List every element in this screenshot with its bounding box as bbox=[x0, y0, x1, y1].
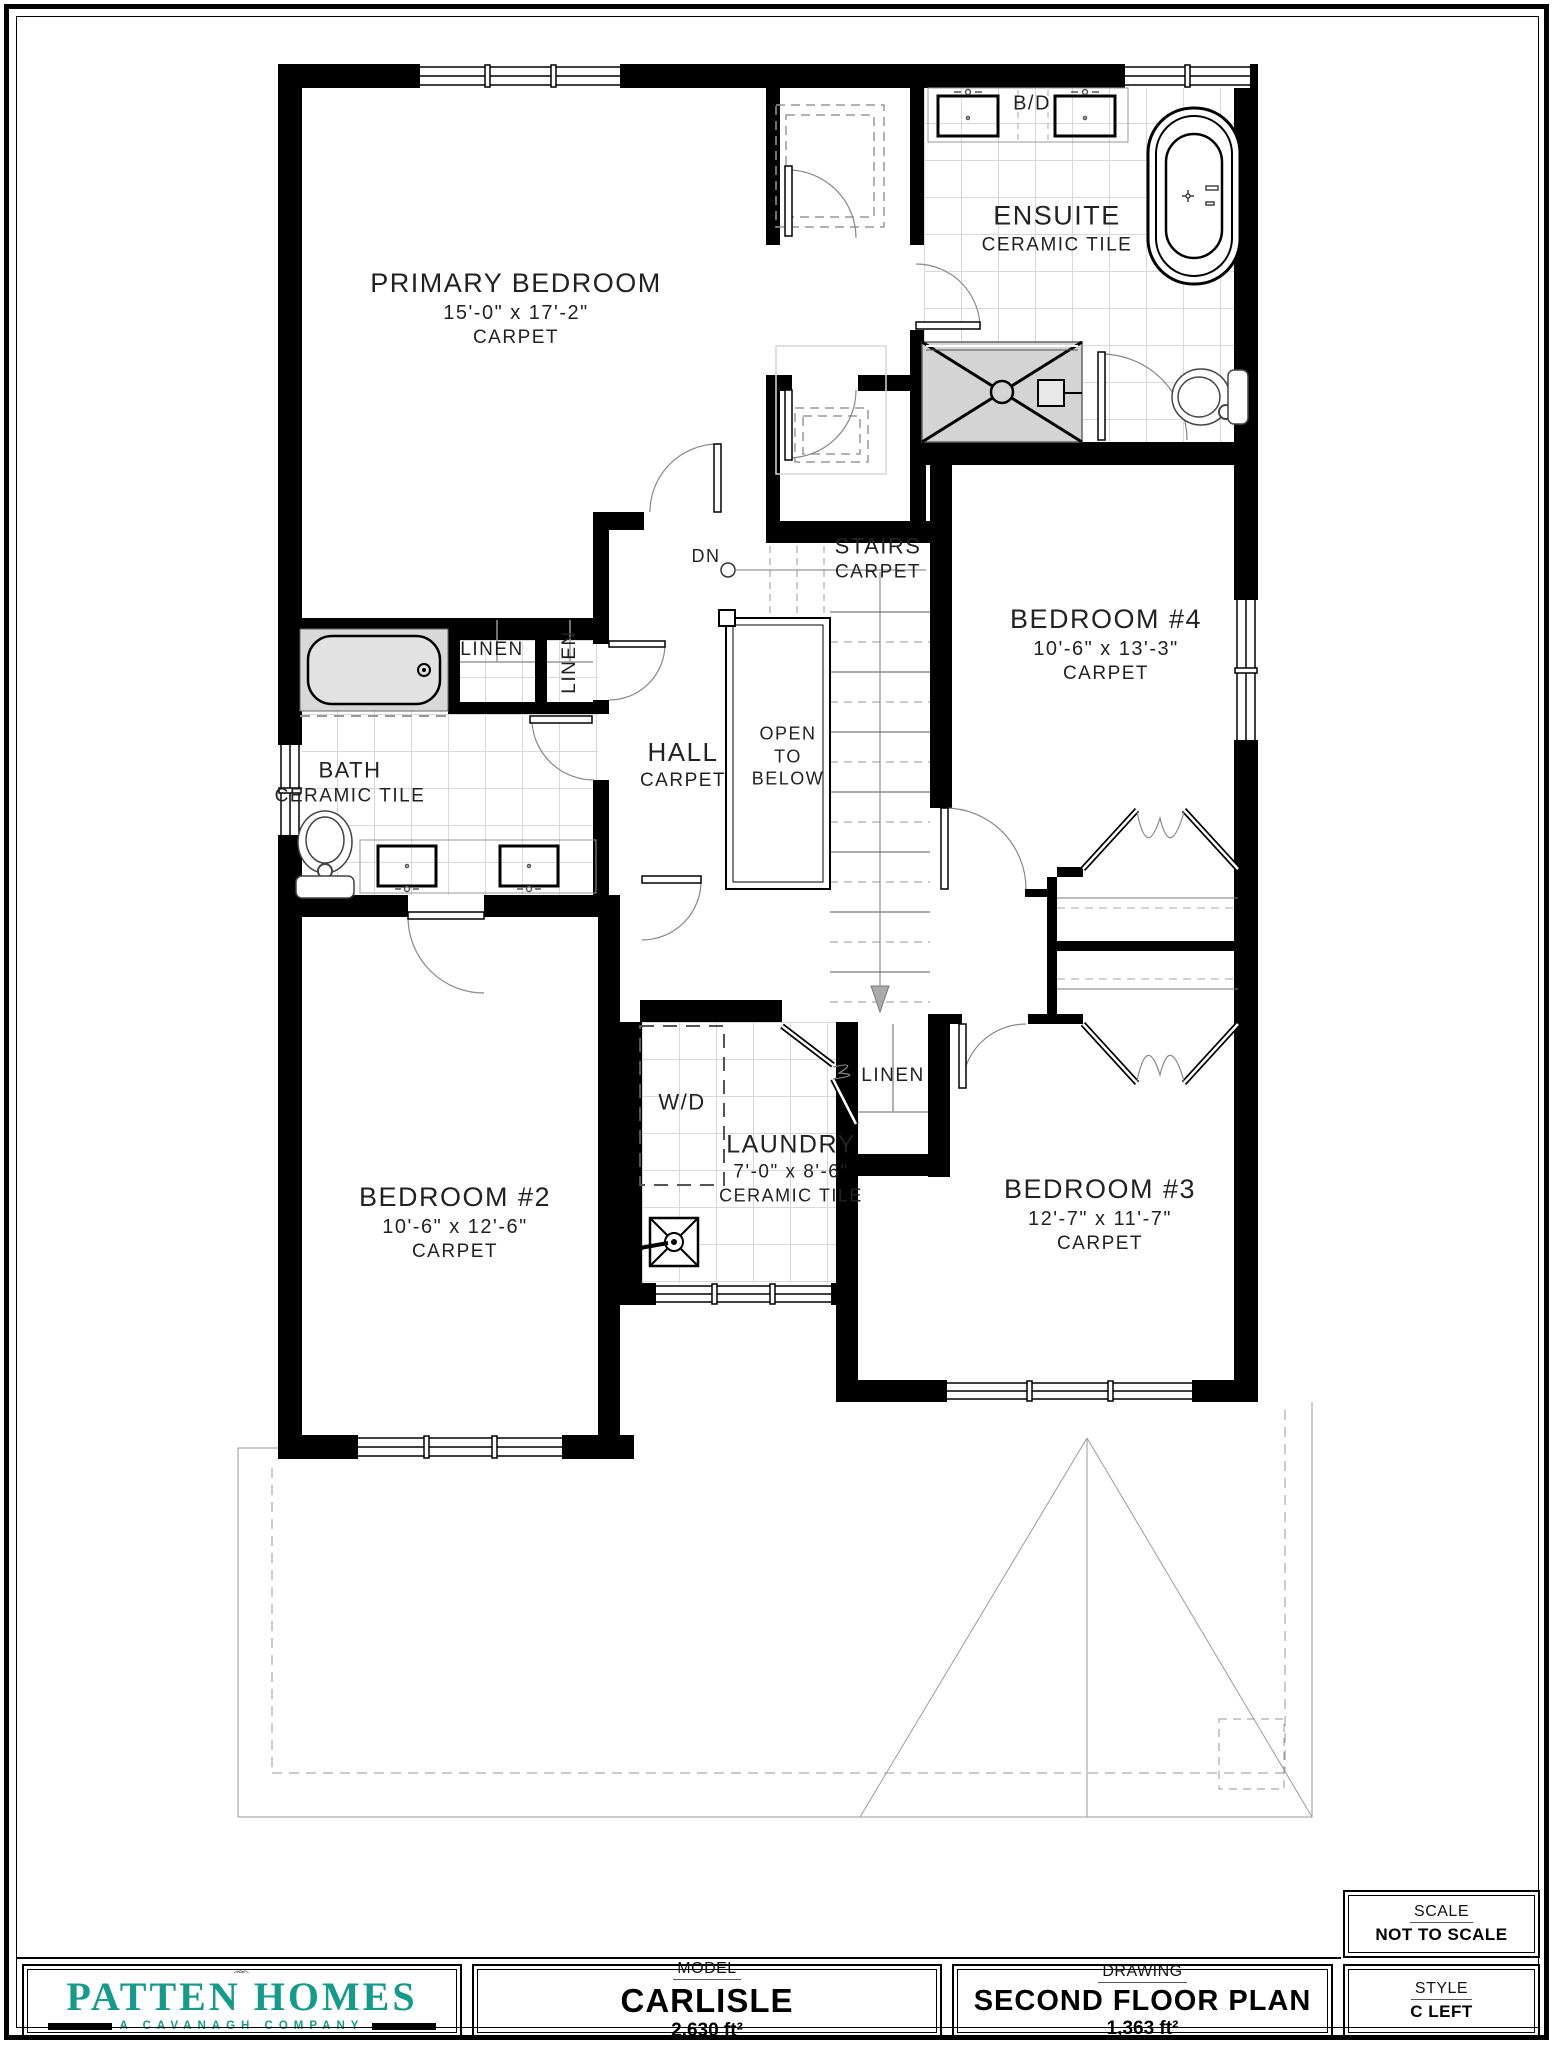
floor-plan-sheet: PRIMARY BEDROOM 15'-0" x 17'-2" CARPET E… bbox=[0, 0, 1557, 2048]
sheet-outer-border bbox=[4, 4, 1549, 2040]
